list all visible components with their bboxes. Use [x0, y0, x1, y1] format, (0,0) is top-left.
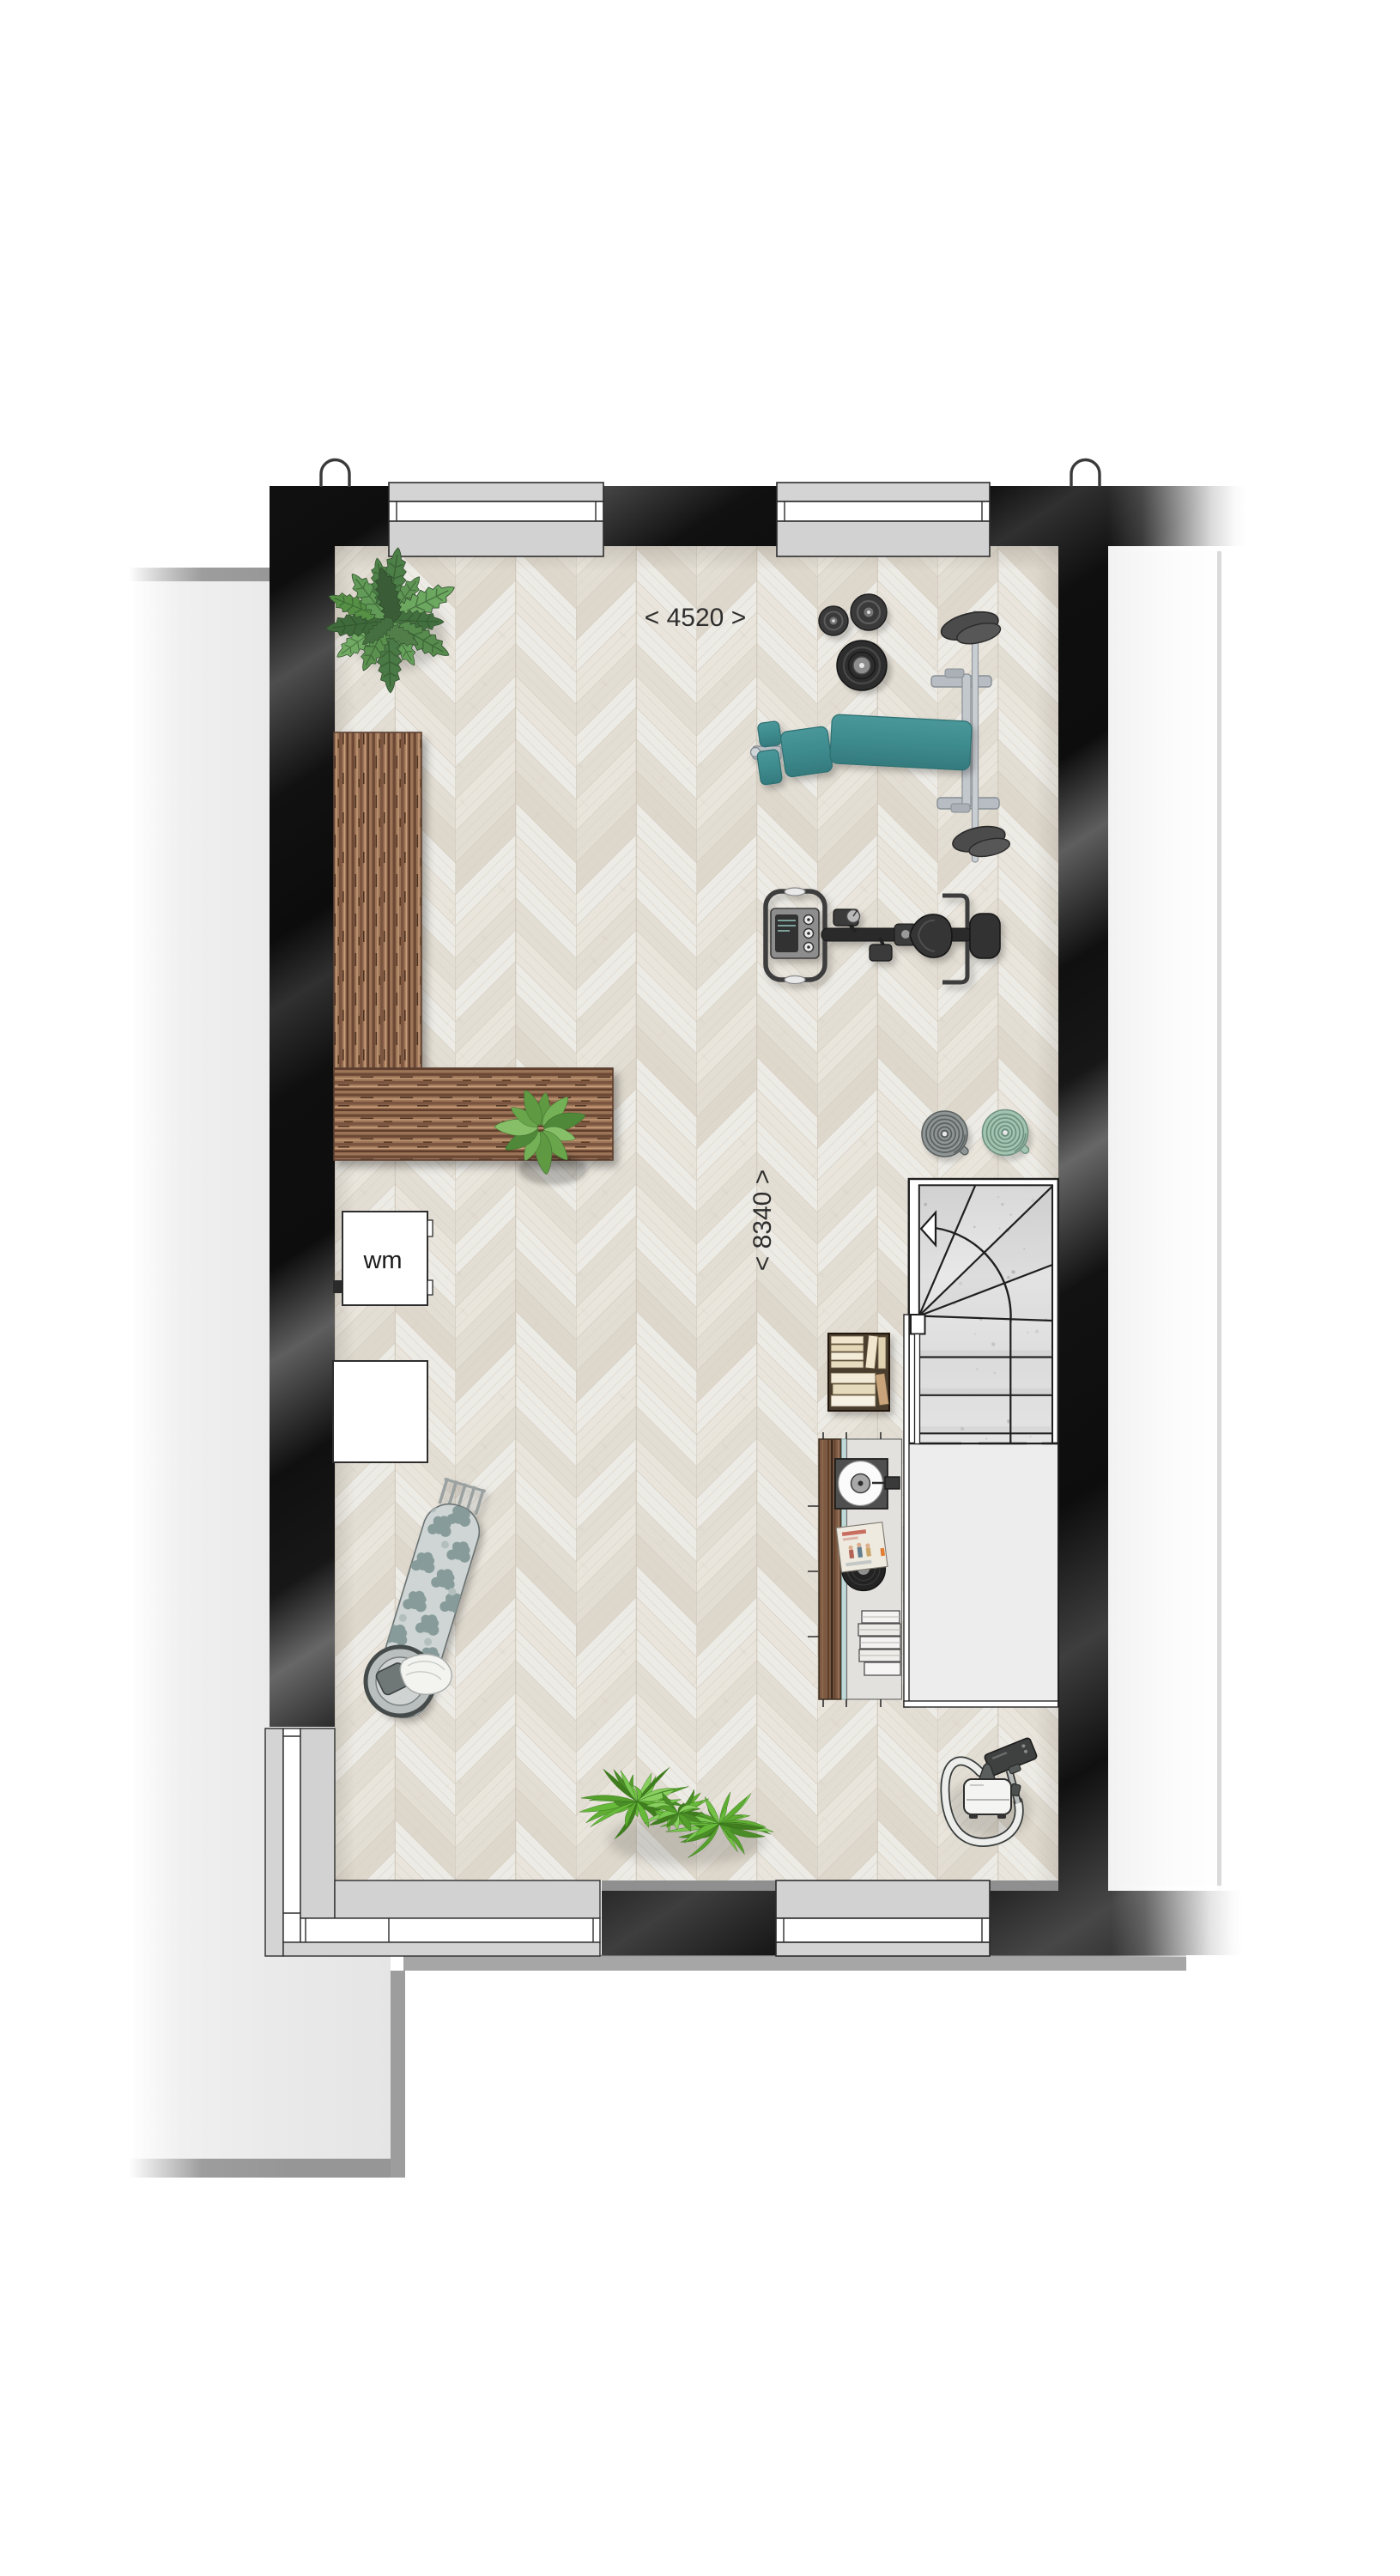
svg-text:< 4520 >: < 4520 > — [645, 604, 746, 632]
svg-text:wm: wm — [362, 1247, 402, 1274]
svg-text:< 8340 >: < 8340 > — [748, 1170, 777, 1271]
